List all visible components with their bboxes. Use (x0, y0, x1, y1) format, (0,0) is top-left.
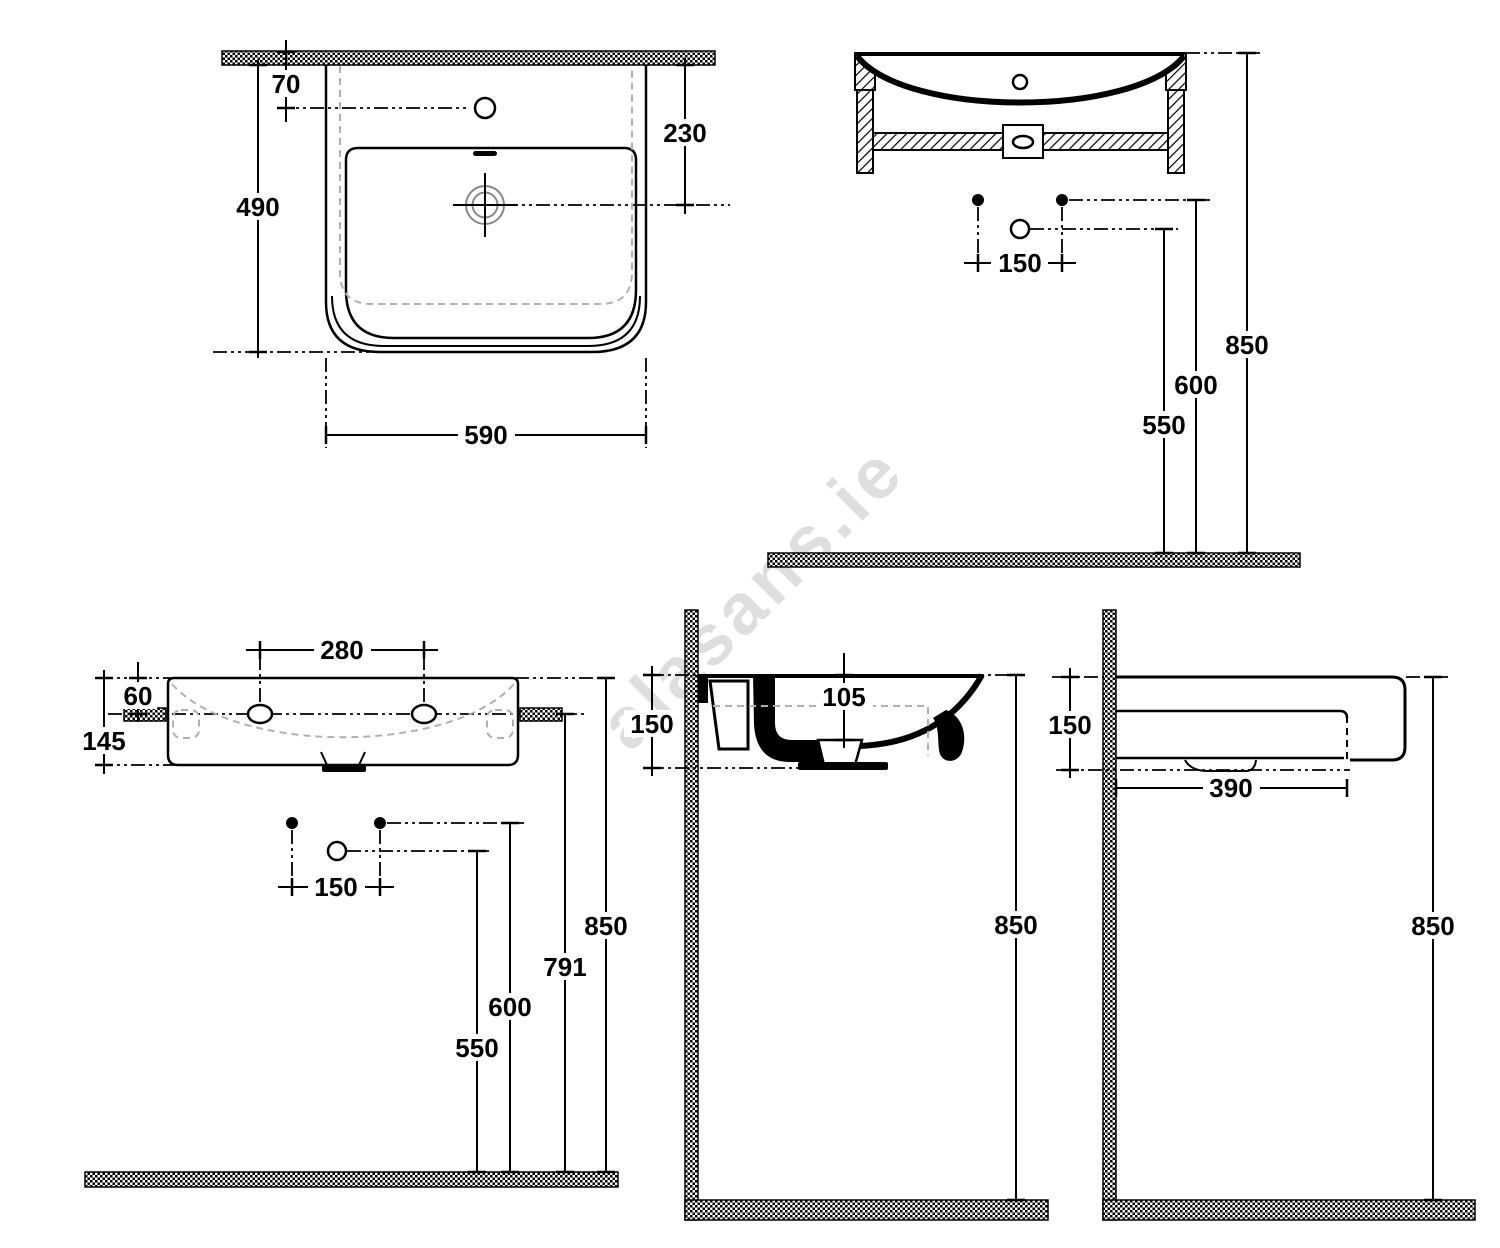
bolt-dot-right (1056, 194, 1068, 206)
drain-hole-icon (1013, 136, 1033, 148)
dim-label-bolt-spacing: 150 (314, 872, 357, 902)
tap-hole-icon (1013, 75, 1027, 89)
drain-trap-section (818, 740, 862, 765)
basin-front-outline (168, 678, 518, 765)
dim-label-depth: 490 (236, 192, 279, 222)
base-hatch-right (1043, 133, 1168, 150)
dim-label-hole-spacing: 280 (320, 635, 363, 665)
dim-label-bolt-height: 600 (488, 992, 531, 1022)
overflow-hook-section (933, 710, 964, 761)
drain-base-strip (798, 762, 888, 770)
drain-crosshair-icon (453, 173, 517, 237)
waste-outlet-icon (1011, 220, 1029, 238)
bolt-dot-left (286, 817, 298, 829)
dim-label-drain-drop: 105 (822, 682, 865, 712)
floor-hatch-strip (768, 553, 1300, 567)
bolt-dot-left (972, 194, 984, 206)
waste-outlet-icon (328, 842, 346, 860)
dim-label-total-height: 850 (584, 911, 627, 941)
washbasin-dimension-drawing: alasans.ie 70 490 230 590 (0, 0, 1500, 1248)
floor-hatch-strip (685, 1200, 1048, 1220)
dim-label-width: 590 (464, 420, 507, 450)
plan-view: 70 490 230 590 (213, 40, 730, 450)
floor-hatch-strip (1103, 1200, 1475, 1220)
dim-label-body-height: 145 (82, 726, 125, 756)
dim-label-fixing-height: 791 (543, 952, 586, 982)
dim-label-bolt-height: 600 (1174, 370, 1217, 400)
dimension-ticks (1061, 677, 1442, 1200)
dim-label-total-height: 850 (994, 910, 1037, 940)
drain-funnel-lines (321, 752, 365, 765)
dim-label-drain-height: 550 (1142, 410, 1185, 440)
fixing-bolt-right (520, 708, 562, 721)
wall-bracket-section (698, 675, 708, 703)
dim-label-bolt-spacing: 150 (998, 248, 1041, 278)
fixing-hole-right-icon (412, 705, 436, 723)
mounting-void (710, 681, 748, 749)
bolt-dot-right (374, 817, 386, 829)
apron-top-line (1116, 711, 1347, 718)
dim-label-drain-edge: 230 (663, 118, 706, 148)
dim-label-underside-depth: 390 (1209, 773, 1252, 803)
tap-hole-icon (475, 98, 495, 118)
bowl-outline (346, 148, 636, 338)
front-view: 280 60 145 150 550 600 791 850 (75, 635, 635, 1187)
dim-label-drain-height: 550 (455, 1033, 498, 1063)
wall-hatch-strip (685, 610, 698, 1220)
dim-label-total-height: 850 (1225, 330, 1268, 360)
leg-hatch-left (857, 90, 873, 173)
wall-hatch-strip (1103, 610, 1116, 1220)
drain-boss (322, 765, 366, 772)
dim-label-tap-offset: 70 (272, 69, 301, 99)
dim-label-body-height: 150 (1048, 710, 1091, 740)
fixing-hole-left-icon (248, 705, 272, 723)
side-view: 150 390 850 (1042, 610, 1475, 1220)
leg-hatch-right (1168, 90, 1184, 173)
technical-drawing-page: alasans.ie 70 490 230 590 (0, 0, 1500, 1248)
dim-label-hole-drop: 60 (124, 681, 153, 711)
overflow-slot-icon (473, 151, 497, 156)
dim-label-body-height: 150 (630, 709, 673, 739)
wall-hatch-strip (222, 51, 715, 65)
dimension-ticks (249, 52, 694, 444)
side-section-view: 105 150 850 (624, 610, 1048, 1220)
dim-label-total-height: 850 (1411, 911, 1454, 941)
hidden-bowl-curve (172, 684, 514, 737)
basin-profile-outline (1116, 677, 1405, 760)
floor-hatch-strip (85, 1172, 618, 1187)
base-hatch-left (873, 133, 1003, 150)
